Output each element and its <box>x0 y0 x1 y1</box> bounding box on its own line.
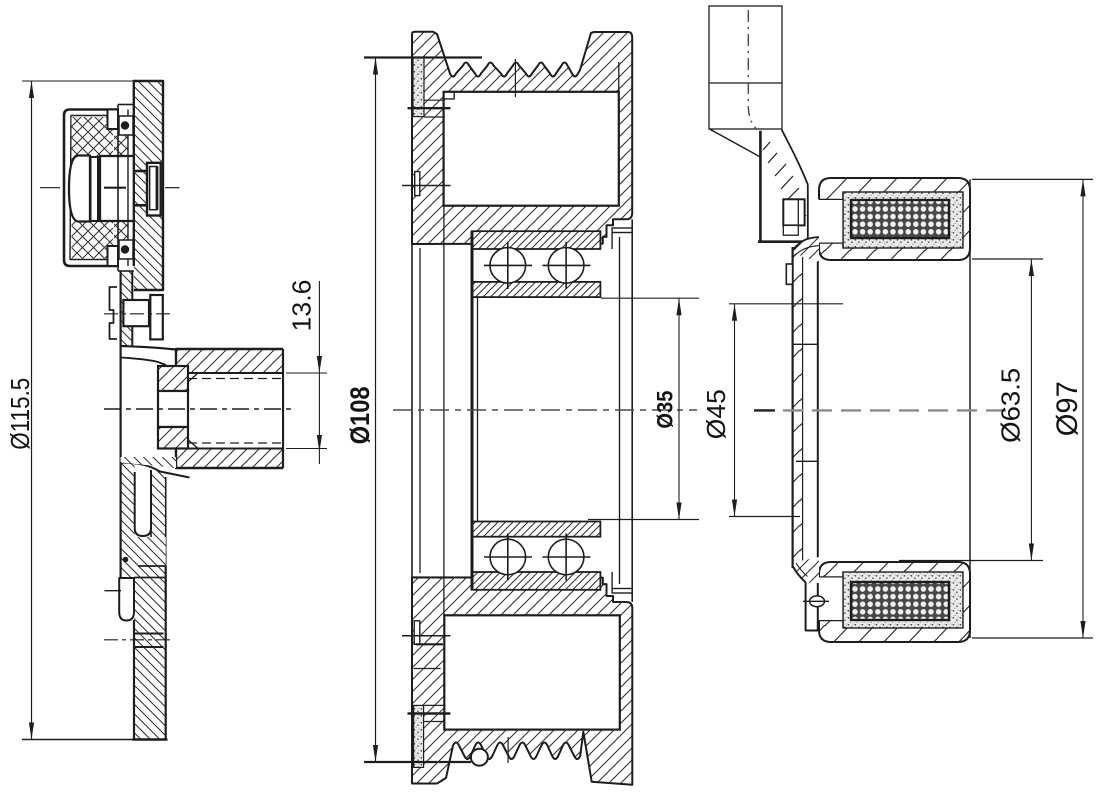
svg-text:Ø63.5: Ø63.5 <box>996 368 1026 443</box>
svg-text:Ø35: Ø35 <box>652 391 677 429</box>
svg-text:Ø108: Ø108 <box>345 386 375 444</box>
svg-text:13.6: 13.6 <box>286 280 316 332</box>
svg-text:Ø45: Ø45 <box>701 389 731 439</box>
svg-text:Ø115.5: Ø115.5 <box>5 378 35 450</box>
svg-text:Ø97: Ø97 <box>1051 381 1084 436</box>
